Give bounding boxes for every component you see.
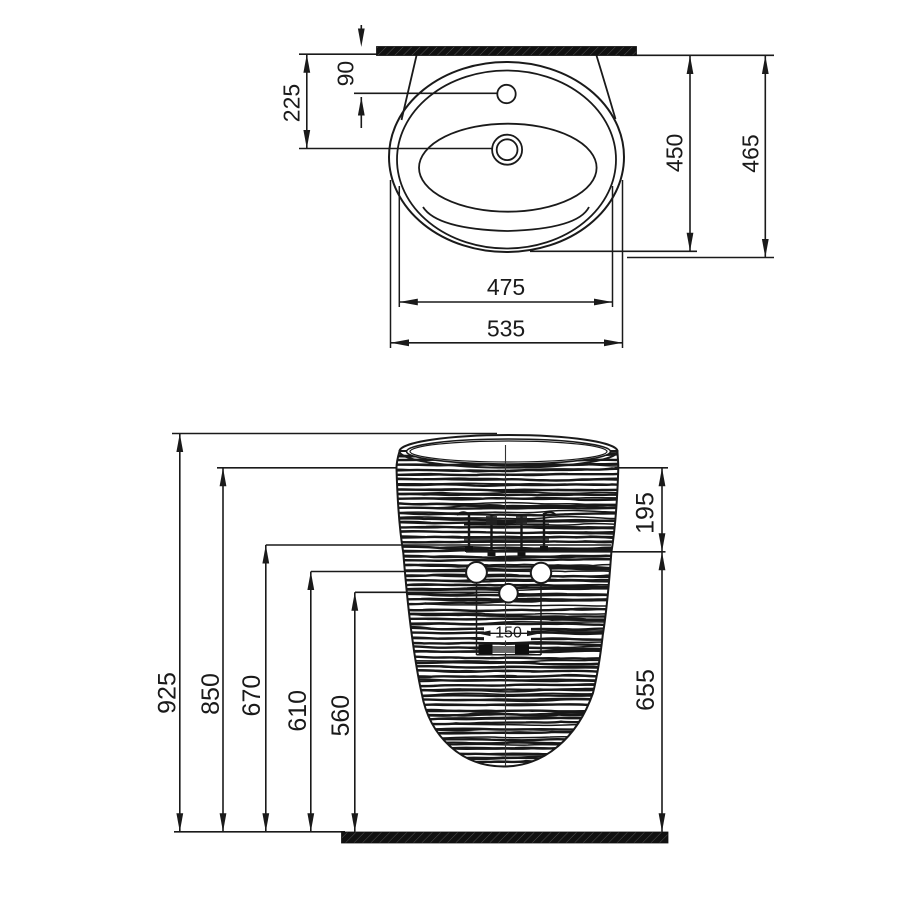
- svg-text:560: 560: [327, 695, 355, 737]
- svg-text:465: 465: [738, 134, 764, 172]
- svg-text:925: 925: [153, 672, 181, 714]
- svg-text:225: 225: [278, 84, 304, 122]
- svg-text:535: 535: [487, 315, 525, 341]
- svg-text:670: 670: [238, 675, 266, 717]
- svg-text:195: 195: [632, 492, 660, 534]
- svg-text:610: 610: [284, 690, 312, 732]
- svg-text:655: 655: [632, 669, 660, 711]
- svg-text:450: 450: [662, 134, 688, 172]
- svg-text:150: 150: [495, 624, 522, 641]
- svg-text:475: 475: [487, 274, 525, 300]
- svg-text:850: 850: [197, 673, 225, 715]
- svg-text:90: 90: [333, 61, 359, 87]
